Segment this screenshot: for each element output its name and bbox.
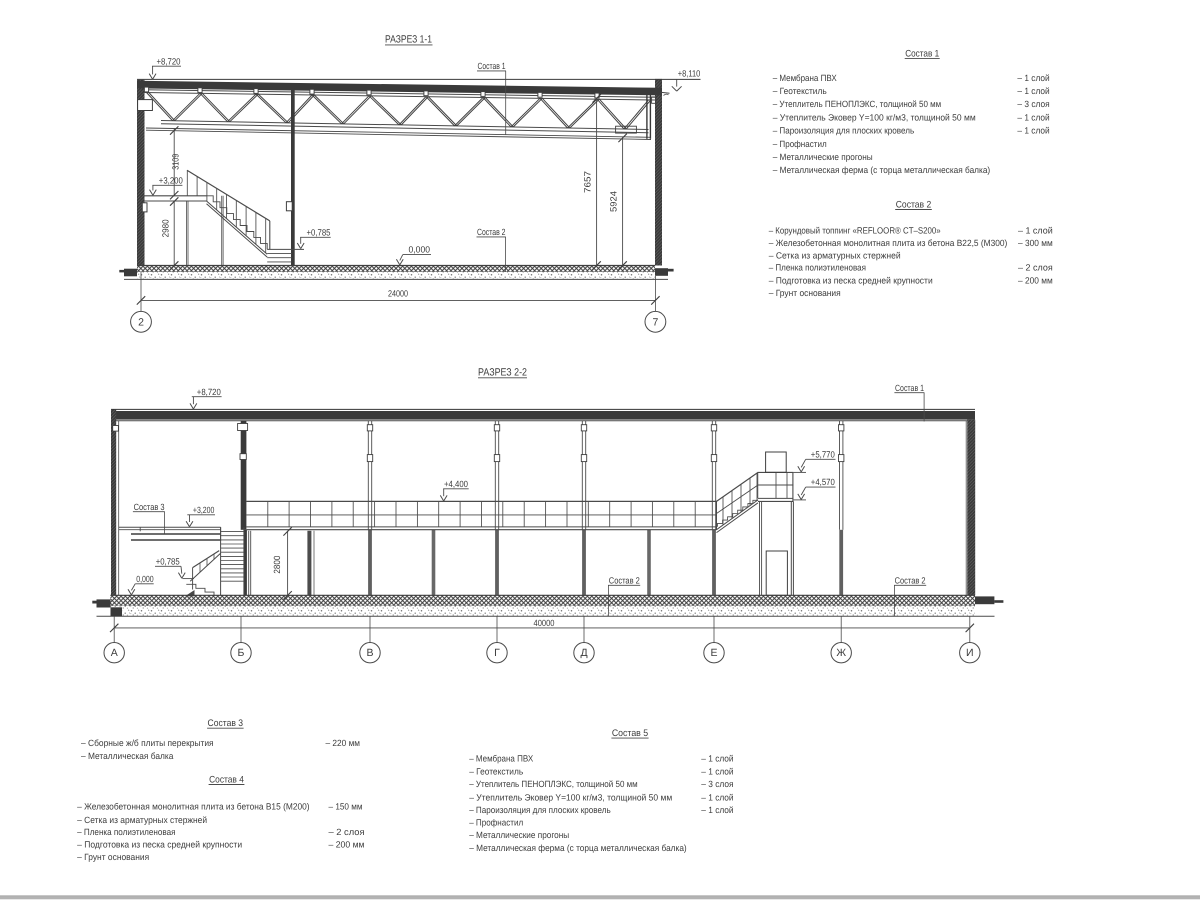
svg-text:– 2 слоя: – 2 слоя [1018,263,1053,273]
svg-text:– 1 слой: – 1 слой [701,792,733,802]
svg-text:– Утеплитель Эковер Y=100 кг/м: – Утеплитель Эковер Y=100 кг/м3, толщино… [773,113,976,123]
svg-text:– 1 слой: – 1 слой [1017,73,1049,83]
svg-text:+3,200: +3,200 [159,175,183,185]
svg-text:– Утеплитель ПЕНОПЛЭКС, толщин: – Утеплитель ПЕНОПЛЭКС, толщиной 50 мм [469,779,638,789]
svg-text:– Корундовый топпинг «REFLOOR®: – Корундовый топпинг «REFLOOR® CT–S200» [769,226,941,236]
svg-text:– 1 слой: – 1 слой [701,754,733,764]
svg-text:– 1 слой: – 1 слой [1017,86,1049,96]
svg-text:– Металлическая балка: – Металлическая балка [81,751,173,761]
svg-text:3109: 3109 [171,154,181,170]
svg-text:Состав 1: Состав 1 [905,49,939,60]
svg-text:– 220 мм: – 220 мм [326,738,361,748]
svg-text:– Утеплитель Эковер Y=100 кг/м: – Утеплитель Эковер Y=100 кг/м3, толщино… [469,792,672,802]
svg-text:– 1 слой: – 1 слой [701,766,733,776]
svg-text:+5,770: +5,770 [811,449,835,459]
svg-text:– Грунт основания: – Грунт основания [77,852,149,862]
svg-text:– 300 мм: – 300 мм [1018,238,1053,248]
svg-text:7: 7 [652,317,658,329]
svg-text:– Сборные ж/б плиты перекрытия: – Сборные ж/б плиты перекрытия [81,738,214,748]
svg-text:Е: Е [710,647,717,659]
svg-text:Б: Б [238,647,245,659]
svg-text:– Геотекстиль: – Геотекстиль [773,86,827,96]
svg-text:– 3 слоя: – 3 слоя [1017,99,1049,109]
svg-text:Состав 1: Состав 1 [478,61,506,71]
svg-text:А: А [111,647,118,659]
svg-text:– Сетка из арматурных стержней: – Сетка из арматурных стержней [769,250,901,260]
svg-text:+8,110: +8,110 [678,68,701,78]
svg-text:– Мембрана ПВХ: – Мембрана ПВХ [773,73,837,83]
svg-text:0,000: 0,000 [409,245,431,255]
svg-text:– Сетка из арматурных стержней: – Сетка из арматурных стержней [77,815,207,825]
svg-text:+0,785: +0,785 [156,556,180,566]
svg-text:Состав 3: Состав 3 [134,502,165,512]
svg-text:– Пароизоляция для плоских кро: – Пароизоляция для плоских кровель [773,126,915,136]
svg-text:– Подготовка из песка средней: – Подготовка из песка средней крупности [769,275,933,285]
svg-text:– Металлическая ферма (с торца: – Металлическая ферма (с торца металличе… [773,165,991,175]
svg-text:– Мембрана ПВХ: – Мембрана ПВХ [469,754,533,764]
svg-text:Состав 2: Состав 2 [477,227,506,237]
svg-text:Состав 1: Состав 1 [895,383,924,393]
svg-text:5924: 5924 [609,191,619,212]
svg-text:Состав 5: Состав 5 [612,728,648,739]
svg-text:– Металлическая ферма (с торца: – Металлическая ферма (с торца металличе… [469,843,687,853]
svg-text:– Пленка полиэтиленовая: – Пленка полиэтиленовая [769,263,866,273]
svg-text:РАЗРЕЗ 2-2: РАЗРЕЗ 2-2 [478,366,527,378]
svg-text:– 1 слой: – 1 слой [701,805,733,815]
svg-text:РАЗРЕЗ 1-1: РАЗРЕЗ 1-1 [385,34,432,46]
svg-text:– Утеплитель ПЕНОПЛЭКС, толщин: – Утеплитель ПЕНОПЛЭКС, толщиной 50 мм [773,99,942,109]
svg-text:+8,720: +8,720 [197,387,221,397]
svg-text:– 150 мм: – 150 мм [329,801,363,811]
svg-text:И: И [966,647,974,659]
svg-text:– 200 мм: – 200 мм [329,839,365,849]
svg-text:– Пароизоляция для плоских кро: – Пароизоляция для плоских кровель [469,805,611,815]
svg-text:+3,200: +3,200 [193,505,215,515]
svg-text:40000: 40000 [534,618,555,628]
svg-text:0,000: 0,000 [136,574,154,584]
svg-text:Состав 2: Состав 2 [896,200,932,211]
svg-text:– Металлические прогоны: – Металлические прогоны [773,152,873,162]
svg-text:+4,400: +4,400 [444,479,468,489]
svg-text:– 2 слоя: – 2 слоя [329,827,365,837]
svg-text:Состав 2: Состав 2 [609,575,640,585]
svg-text:+4,570: +4,570 [811,477,835,487]
svg-text:2980: 2980 [160,219,170,237]
svg-text:+8,720: +8,720 [157,56,181,66]
svg-text:Состав 3: Состав 3 [208,718,244,729]
svg-text:– Профнастил: – Профнастил [773,139,827,149]
svg-text:7657: 7657 [583,171,593,193]
svg-text:Состав 2: Состав 2 [895,575,926,585]
svg-text:– Железобетонная монолитная п: – Железобетонная монолитная плита из бет… [769,238,1008,248]
svg-text:Состав 4: Состав 4 [209,775,244,786]
svg-text:– Геотекстиль: – Геотекстиль [469,766,523,776]
svg-text:В: В [366,647,373,659]
svg-text:Д: Д [580,647,587,659]
svg-text:2: 2 [138,317,144,329]
svg-text:+0,785: +0,785 [307,227,331,237]
svg-text:Ж: Ж [836,647,846,659]
svg-text:24000: 24000 [388,289,408,299]
svg-text:– Железобетонная монолитная п: – Железобетонная монолитная плита из бет… [77,801,310,811]
svg-text:Г: Г [494,647,500,659]
svg-text:– Профнастил: – Профнастил [469,818,523,828]
svg-text:– Грунт основания: – Грунт основания [769,288,841,298]
svg-text:– 200 мм: – 200 мм [1018,275,1053,285]
svg-text:– 3 слоя: – 3 слоя [701,779,733,789]
svg-text:– Металлические прогоны: – Металлические прогоны [469,830,569,840]
svg-text:– 1 слой: – 1 слой [1017,126,1049,136]
svg-text:2800: 2800 [272,556,282,574]
svg-text:– 1 слой: – 1 слой [1018,226,1053,236]
svg-text:– 1 слой: – 1 слой [1017,113,1049,123]
svg-text:– Подготовка из песка средней: – Подготовка из песка средней крупности [77,839,242,849]
svg-text:– Пленка полиэтиленовая: – Пленка полиэтиленовая [77,827,176,837]
